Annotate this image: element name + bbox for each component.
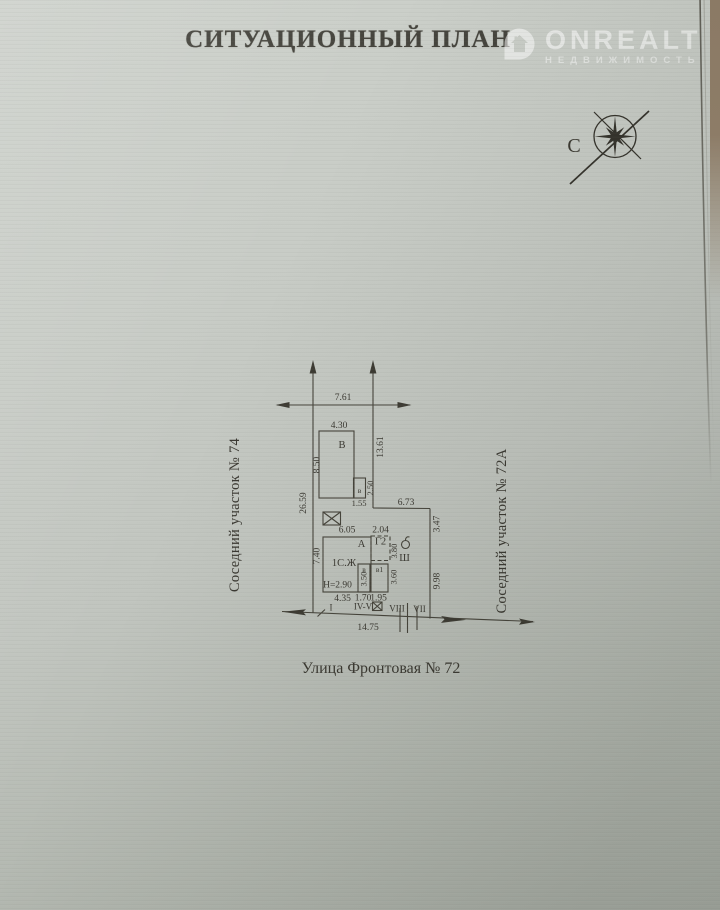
arrow-left-icon	[283, 609, 307, 615]
well-symbol: Ш	[399, 537, 410, 564]
shed-crossed-icon	[323, 512, 341, 525]
dim-street-front: 14.75	[357, 623, 379, 633]
arrow-right-icon	[441, 616, 466, 623]
dim-left-side: 26.59	[299, 492, 309, 514]
g2-label: Г2	[375, 537, 386, 548]
well-hook-icon	[406, 537, 410, 541]
building-b-outline	[319, 431, 354, 498]
north-jog-line	[373, 508, 430, 509]
annex-v1-label: в1	[376, 565, 384, 574]
main-house: 6.05 2.04 А Г2 3.80 1С.Ж в в1 3.50 3.60 …	[313, 526, 400, 605]
dim-v1-depth: 3.60	[389, 570, 399, 585]
compass-north-line	[570, 111, 649, 184]
house-type-label: 1С.Ж	[332, 558, 357, 569]
compass-rose: С	[550, 95, 665, 195]
building-b-annex-label: в	[358, 486, 362, 495]
scanner-background-strip	[710, 0, 720, 300]
logo-tagline: НЕДВИЖИМОСТЬ	[545, 55, 702, 66]
dim-front-top: 7.61	[335, 393, 352, 403]
well-label: Ш	[399, 553, 410, 564]
dim-bottom-a: 4.35	[334, 594, 351, 604]
mark-vii: VII	[413, 604, 426, 614]
mark-viii: VIII	[389, 604, 405, 614]
house-a-label: А	[358, 539, 366, 550]
dim-b-annex-d: 2.50	[365, 481, 375, 496]
arrow-up-icon	[370, 360, 377, 374]
building-b-label: В	[338, 440, 345, 451]
dim-g2-depth: 3.80	[389, 544, 399, 559]
dim-right-seg-2: 9.98	[433, 572, 443, 589]
dim-b-width: 4.30	[331, 421, 348, 431]
house-height-label: Н=2.90	[323, 581, 352, 591]
well-circle-icon	[402, 541, 410, 549]
arrow-left-icon	[276, 402, 290, 408]
onrealt-house-pin-icon	[503, 27, 536, 63]
building-b: В 4.30 8.50 в 2.50 1.55	[313, 421, 376, 508]
dim-v-depth: 3.50	[359, 572, 369, 587]
street-label: Улица Фронтовая № 72	[302, 660, 461, 677]
onrealt-watermark: ONREALT НЕДВИЖИМОСТЬ	[503, 27, 702, 66]
compass-north-label: С	[567, 135, 580, 157]
left-neighbor-label: Соседний участок № 74	[227, 437, 243, 592]
arrow-right-icon	[519, 619, 535, 625]
page-title: СИТУАЦИОННЫЙ ПЛАН	[185, 26, 511, 54]
dim-right-side-upper: 13.61	[376, 436, 386, 458]
mark-i: I	[330, 603, 333, 613]
dim-right-seg-1: 3.47	[433, 515, 443, 532]
dim-g2-width: 2.04	[372, 526, 389, 536]
dim-a-depth: 7.40	[313, 547, 323, 564]
dim-north-jog: 6.73	[398, 498, 415, 508]
mark-iv-v: IV-V	[354, 602, 373, 612]
site-plan-drawing: 7.61 26.59 13.61 В 4.30 8.50 в 2.50 1.55…	[200, 350, 560, 690]
arrow-up-icon	[310, 360, 317, 374]
compass-star-icon	[595, 116, 636, 157]
dim-b-depth: 8.50	[313, 456, 323, 473]
dim-b-annex-w: 1.55	[352, 498, 367, 508]
logo-brand: ONREALT	[545, 27, 702, 53]
arrow-right-icon	[398, 402, 412, 408]
front-dimension: 7.61	[276, 393, 412, 408]
right-neighbor-label: Соседний участок № 72А	[494, 448, 510, 613]
dim-a-width: 6.05	[339, 526, 356, 536]
